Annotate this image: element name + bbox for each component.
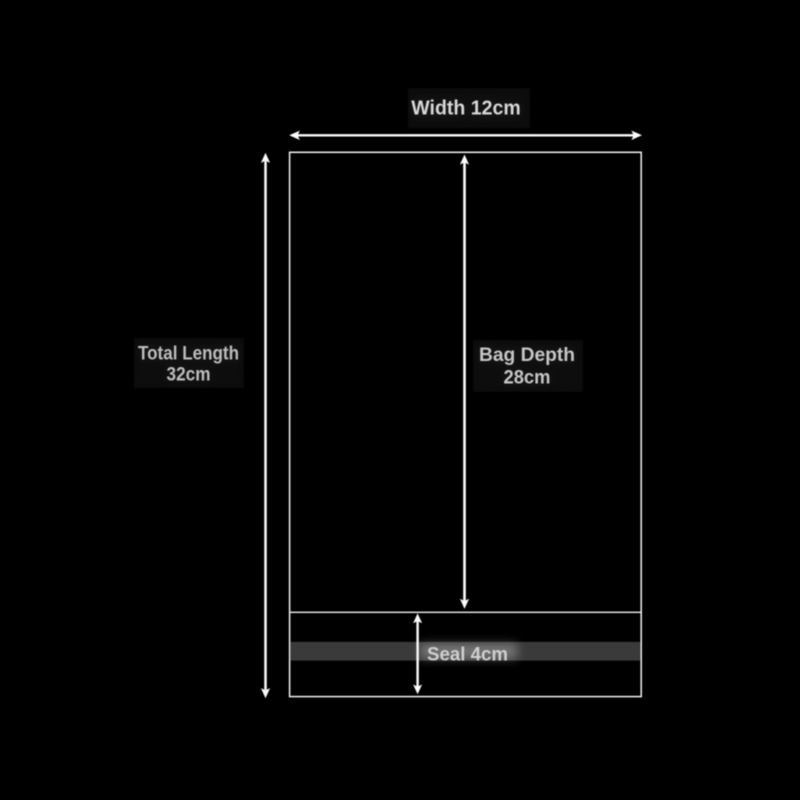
svg-text:Bag Depth: Bag Depth (479, 345, 575, 366)
svg-text:Total Length: Total Length (138, 344, 239, 365)
svg-text:Width 12cm: Width 12cm (411, 97, 521, 120)
svg-text:Seal 4cm: Seal 4cm (427, 644, 508, 665)
svg-text:32cm: 32cm (167, 365, 211, 386)
svg-text:28cm: 28cm (504, 368, 551, 389)
